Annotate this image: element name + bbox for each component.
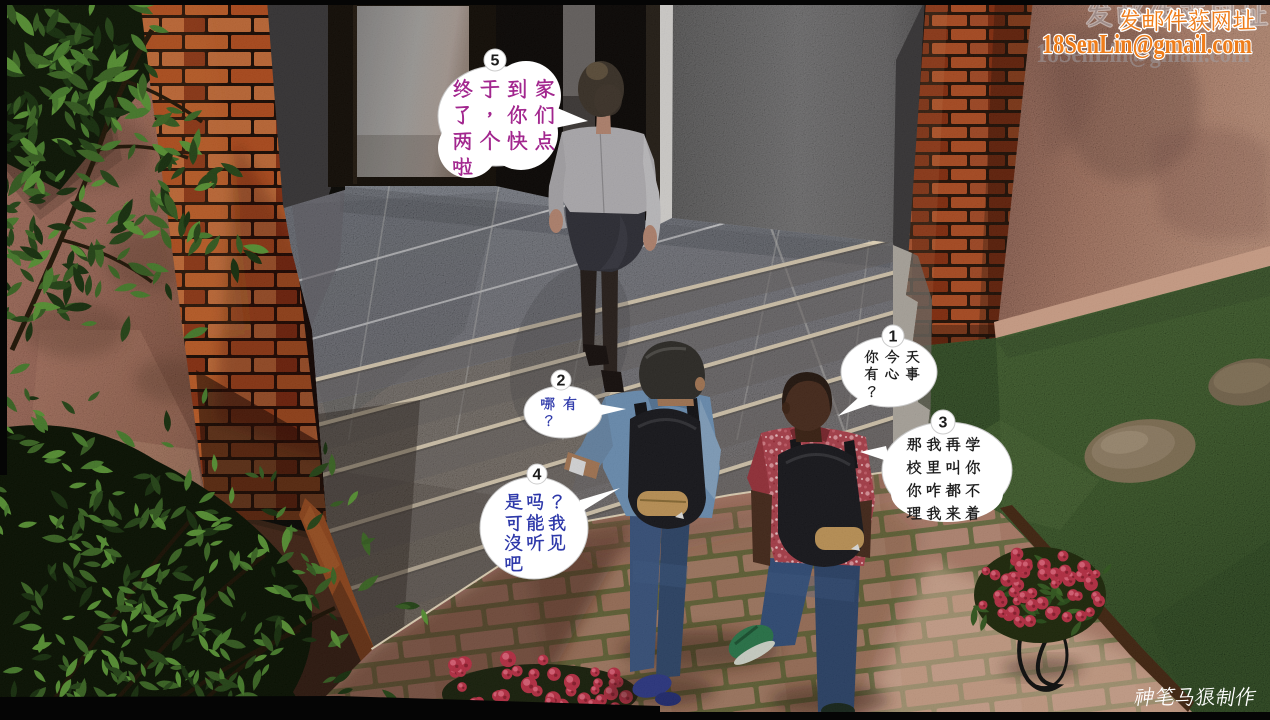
svg-text:18SenLin@gmail.com: 18SenLin@gmail.com (1042, 29, 1252, 59)
svg-text:3: 3 (939, 415, 948, 432)
svg-text:2: 2 (557, 373, 566, 390)
svg-text:5: 5 (491, 53, 500, 70)
svg-text:4: 4 (533, 467, 542, 484)
svg-text:1: 1 (889, 329, 898, 346)
